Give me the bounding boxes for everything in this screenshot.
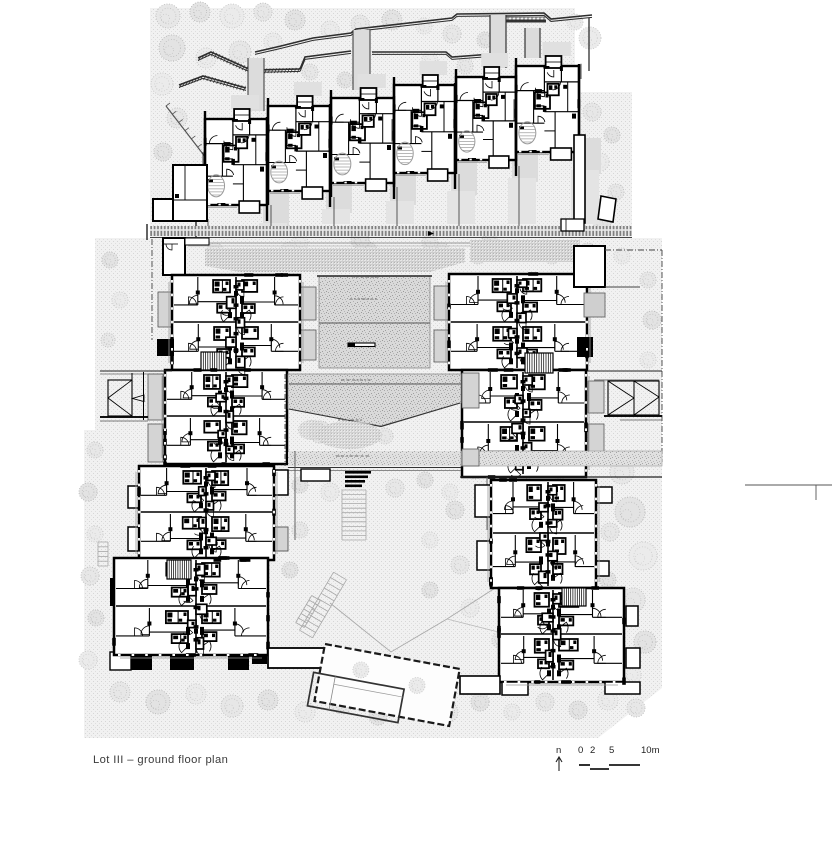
svg-text:0: 0	[578, 745, 583, 756]
svg-text:Lot III – ground floor plan: Lot III – ground floor plan	[93, 754, 228, 766]
svg-text:n: n	[556, 745, 561, 756]
svg-text:5: 5	[609, 745, 614, 756]
svg-text:10m: 10m	[641, 745, 660, 756]
svg-text:2: 2	[590, 745, 595, 756]
